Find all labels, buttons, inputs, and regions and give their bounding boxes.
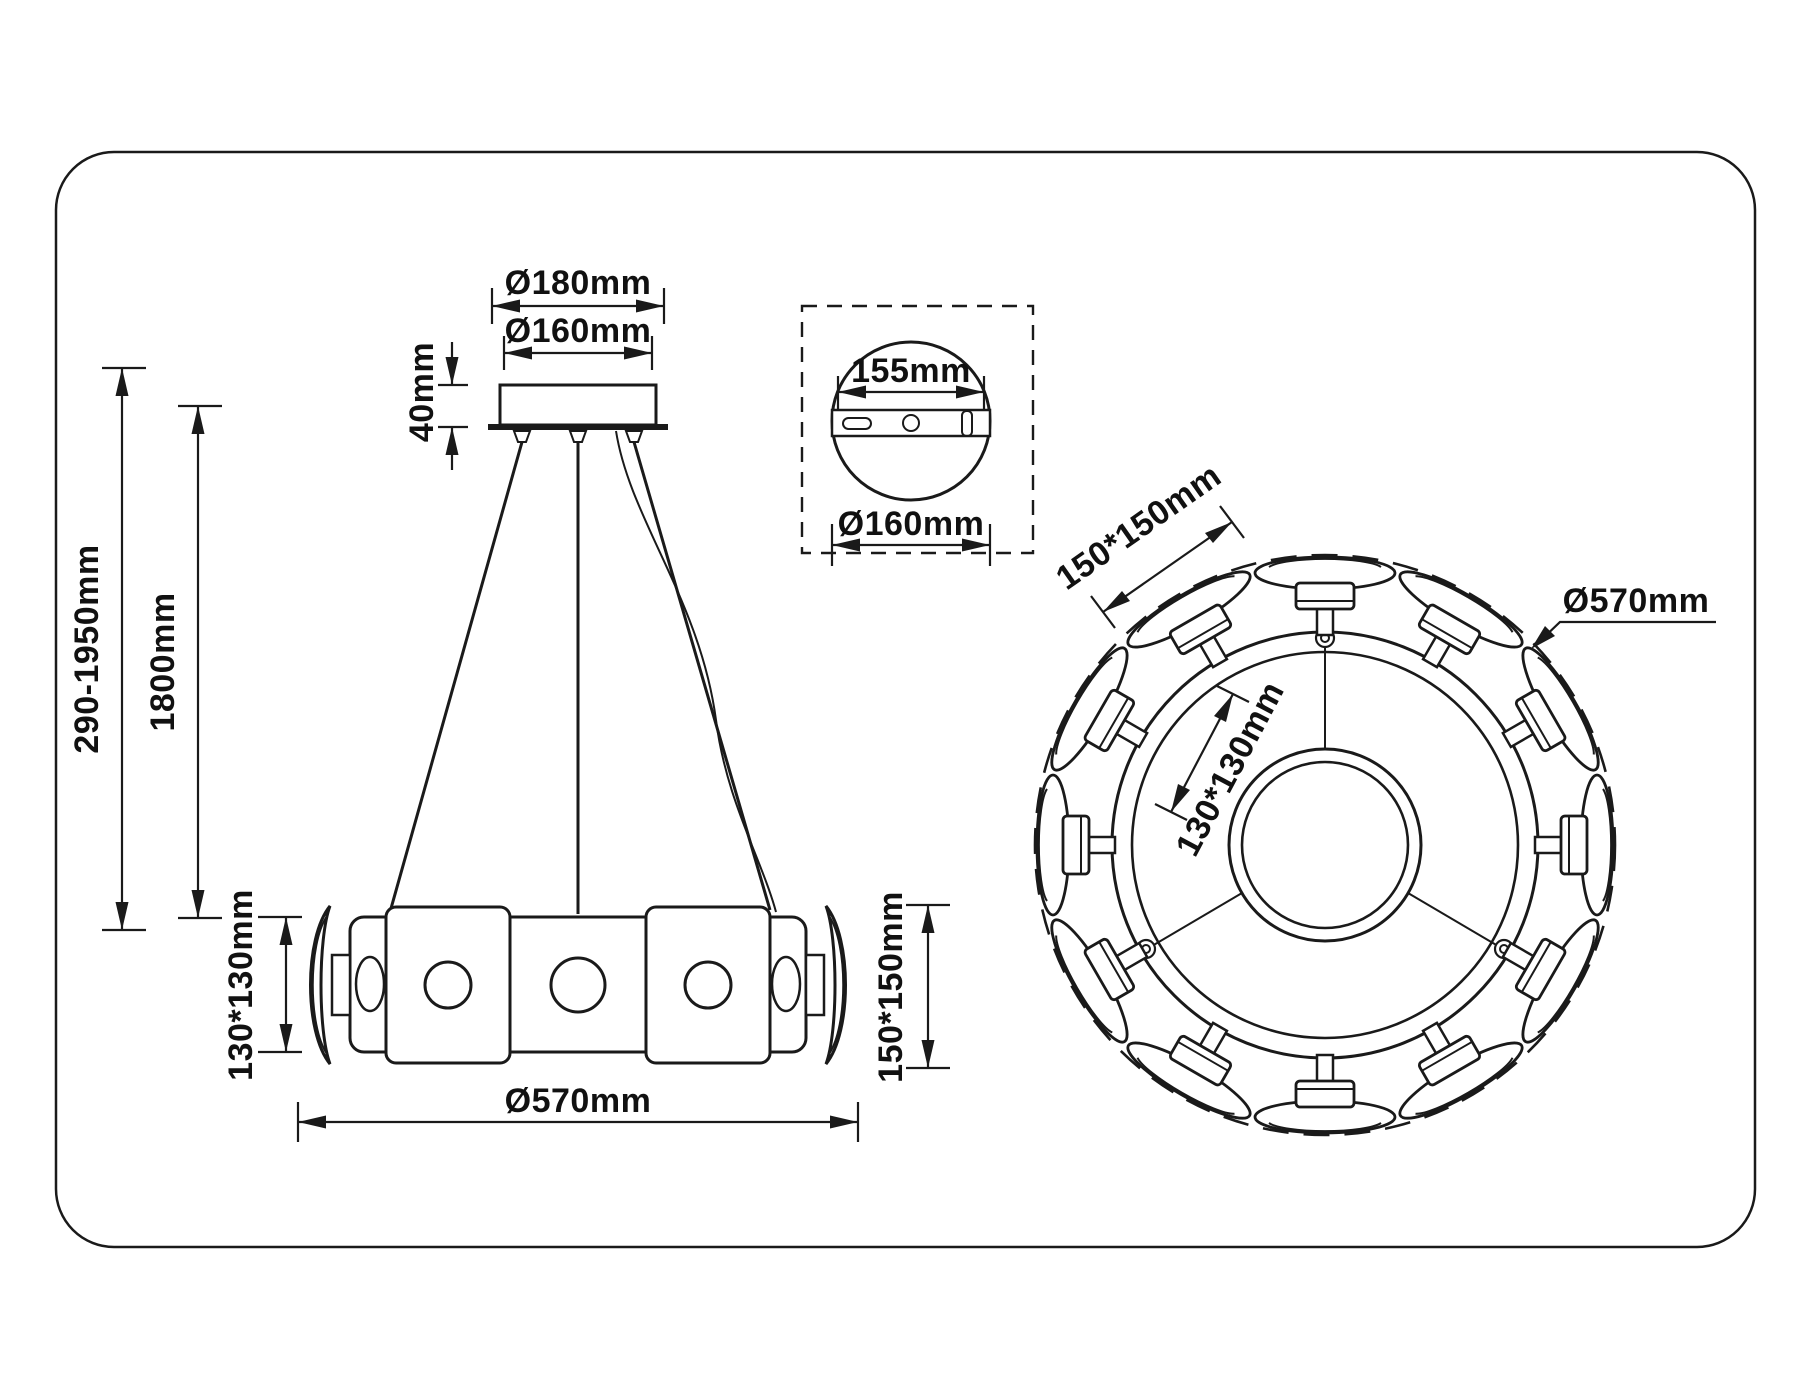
- canopy-detail-view: 155mm Ø160mm: [802, 306, 1033, 566]
- shade: [1255, 1055, 1395, 1133]
- shade: [1255, 557, 1395, 635]
- label-shade-size-side: 150*150mm: [872, 891, 910, 1083]
- label-ring-diameter-side: Ø570mm: [505, 1082, 652, 1120]
- shade: [1120, 992, 1280, 1130]
- top-hub: [1229, 749, 1421, 941]
- label-bracket-length: 155mm: [851, 352, 971, 390]
- dim-detail-plate-diameter: Ø160mm: [832, 505, 990, 566]
- dim-suspension-length: 1800mm: [144, 406, 222, 918]
- label-canopy-inner: Ø160mm: [505, 312, 652, 350]
- label-canopy-height: 40mm: [403, 342, 441, 442]
- shade: [1535, 775, 1613, 915]
- label-ring-profile: 130*130mm: [222, 889, 260, 1081]
- label-suspension-length: 1800mm: [144, 592, 182, 731]
- dim-canopy-height: 40mm: [403, 342, 468, 470]
- shade: [1369, 561, 1529, 699]
- label-canopy-outer: Ø180mm: [505, 264, 652, 302]
- dim-canopy-inner: Ø160mm: [504, 312, 652, 370]
- shade: [1472, 640, 1610, 800]
- label-overall-height: 290-1950mm: [68, 544, 106, 753]
- drawing-canvas: Ø180mm Ø160mm 40mm 290: [0, 0, 1800, 1400]
- dim-ring-profile: 130*130mm: [222, 889, 302, 1081]
- power-cord: [616, 431, 776, 912]
- lamp-dimension-drawing: Ø180mm Ø160mm 40mm 290: [0, 0, 1800, 1400]
- suspension-cables: [390, 431, 776, 914]
- label-detail-plate-diameter: Ø160mm: [838, 505, 985, 543]
- top-view: 150*150mm 130*130mm Ø570mm: [1035, 456, 1716, 1135]
- dim-shade-size-side: 150*150mm: [872, 891, 950, 1083]
- shade: [1041, 640, 1179, 800]
- dim-ring-diameter-side: Ø570mm: [298, 1082, 858, 1142]
- side-ring-body: [311, 906, 846, 1064]
- dim-overall-height: 290-1950mm: [68, 368, 146, 930]
- shade: [1041, 889, 1179, 1049]
- dim-ring-diameter-top: Ø570mm: [1531, 582, 1716, 649]
- shade: [1369, 992, 1529, 1130]
- label-shade-size-top: 150*150mm: [1049, 456, 1228, 597]
- side-view: Ø180mm Ø160mm 40mm 290: [68, 264, 950, 1142]
- shade: [1037, 775, 1115, 915]
- dim-bracket-length: 155mm: [838, 352, 984, 410]
- shade: [1472, 889, 1610, 1049]
- label-ring-diameter-top: Ø570mm: [1563, 582, 1710, 620]
- dim-hub-size-top: 130*130mm: [1155, 675, 1292, 862]
- side-canopy: [488, 385, 668, 442]
